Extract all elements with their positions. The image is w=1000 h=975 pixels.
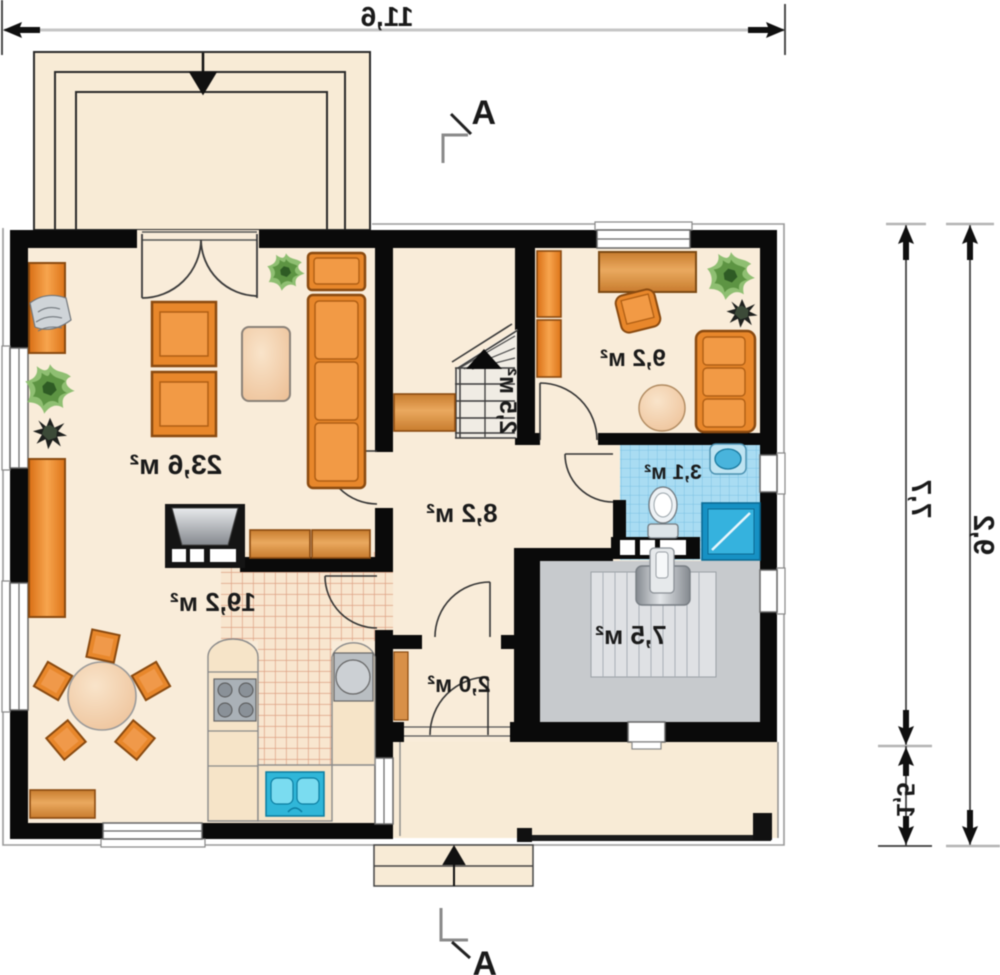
svg-text:8,2 м²: 8,2 м² [426, 498, 498, 528]
svg-text:3,1 м²: 3,1 м² [644, 461, 702, 484]
svg-text:A: A [472, 945, 497, 975]
svg-text:A: A [471, 94, 496, 132]
svg-text:1,5: 1,5 [891, 783, 919, 818]
svg-text:9,2: 9,2 [967, 515, 999, 555]
svg-text:9,2 м²: 9,2 м² [600, 345, 666, 372]
svg-text:7,5 м²: 7,5 м² [595, 620, 667, 650]
svg-text:2,0 м²: 2,0 м² [427, 671, 490, 697]
svg-text:11,6: 11,6 [361, 1, 414, 32]
svg-text:19,2 м²: 19,2 м² [170, 587, 256, 617]
svg-text:7,7: 7,7 [906, 480, 937, 519]
svg-text:23,6 м²: 23,6 м² [130, 449, 222, 480]
svg-text:2,5 м²: 2,5 м² [494, 368, 521, 434]
